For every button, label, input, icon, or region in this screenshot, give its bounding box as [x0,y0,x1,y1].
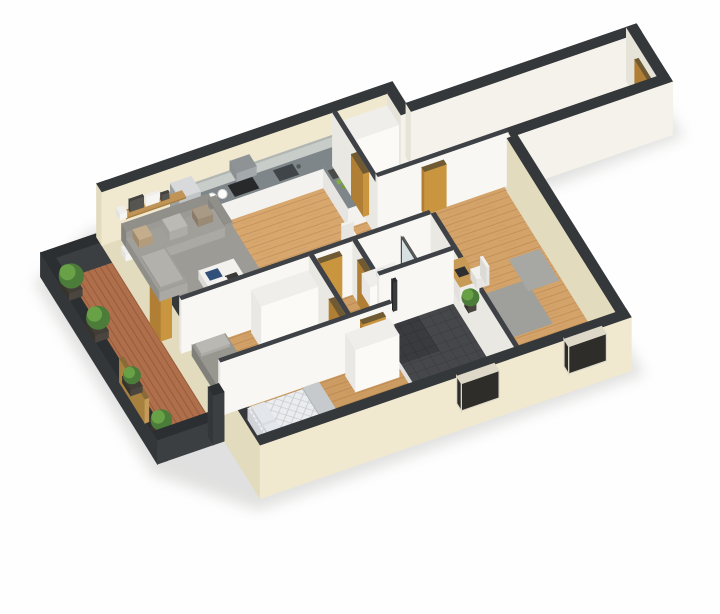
kitchen-faucet [296,164,301,169]
apartment-isometric-render [0,0,720,614]
corridor-south-wall-west-face [376,173,378,230]
corridor-living-door-south-face [363,172,369,217]
south-exterior-wall-west-face [255,437,260,499]
balcony-plant-4-highlight [151,410,165,424]
study-plant-highlight [462,289,473,300]
balcony-plant-3-highlight [124,367,135,378]
floorplan-page: Isometric 3D apartment floor plan render [0,0,720,614]
corridor-north-wall-west-face [406,103,411,165]
living-south-wall-west-face [180,296,182,353]
kitchen-plate-2 [218,189,227,198]
study-door-south-face [425,164,447,215]
balcony-screen-south-face [145,398,149,424]
balcony-plant-1-highlight [60,264,76,280]
balcony-end-column-west-face [208,387,213,445]
study-door-west-face [422,167,425,214]
study-chair-back-south-face [487,266,489,285]
balcony-end-column-south-face [213,392,224,445]
balcony-plant-2-highlight [87,307,102,322]
balcony-door-south-face [161,295,172,342]
north-exterior-wall-west-face [97,184,102,246]
shower-column-south-face [393,281,397,312]
